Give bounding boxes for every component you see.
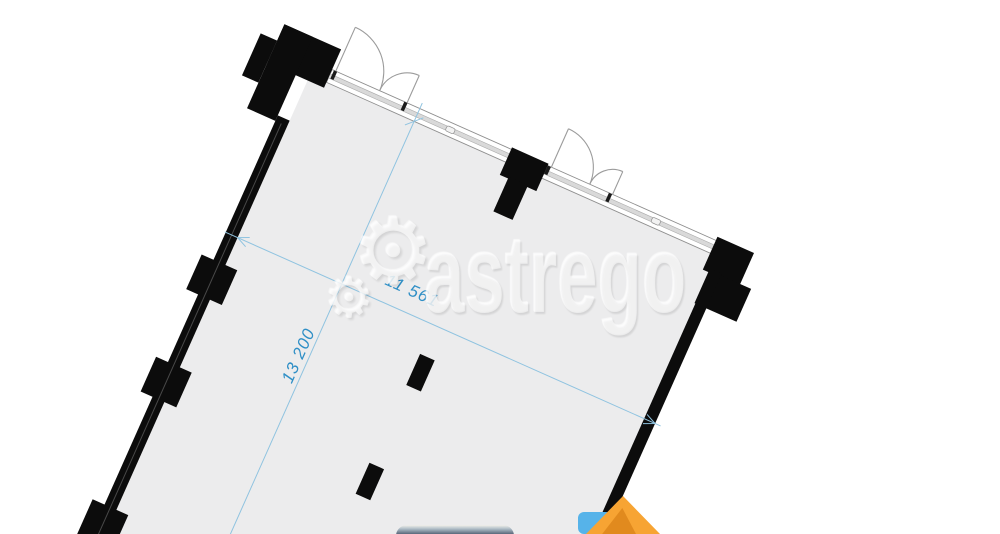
brand-logo	[574, 492, 664, 534]
floor-plan-screenshot: 11 561 13 200 ⚙ ⚙ astrego	[0, 0, 1000, 534]
floor-plan-drawing	[0, 0, 853, 534]
bottom-logo-fragment	[396, 525, 514, 534]
